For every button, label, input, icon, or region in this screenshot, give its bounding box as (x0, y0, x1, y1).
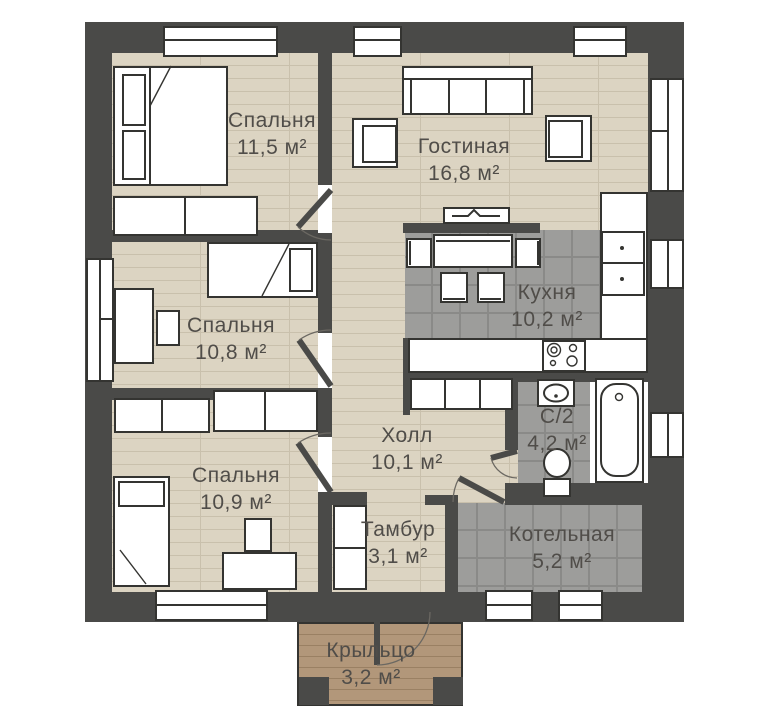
window-right-bathroom (650, 412, 684, 458)
room-label-vestibule: Тамбур 3,1 м² (361, 516, 435, 570)
room-name: Котельная (509, 521, 615, 548)
chair (515, 238, 541, 268)
tv-stand-bar (403, 223, 540, 233)
window-top-living-right (573, 26, 627, 57)
window-top-bedroom1 (163, 26, 278, 57)
room-label-bedroom-3: Спальня 10,9 м² (192, 462, 280, 516)
window-bottom-boiler-right (558, 590, 603, 621)
room-area: 10,9 м² (192, 489, 280, 516)
room-area: 3,2 м² (326, 664, 415, 691)
room-label-bedroom-1: Спальня 11,5 м² (228, 107, 316, 161)
armchair (545, 115, 592, 162)
wall-center-2 (318, 233, 332, 333)
room-area: 10,2 м² (511, 306, 583, 333)
chair (440, 272, 468, 303)
room-name: Спальня (187, 312, 275, 339)
room-label-living-room: Гостиная 16,8 м² (418, 133, 510, 187)
toilet-tank (543, 478, 571, 497)
room-label-bathroom: С/2 4,2 м² (527, 403, 586, 457)
window-bottom-bedroom3 (155, 590, 268, 621)
pillow (122, 74, 146, 126)
tv-icon (443, 207, 510, 224)
wall-bathroom-bottom (505, 483, 648, 505)
room-name: Спальня (192, 462, 280, 489)
room-label-boiler-room: Котельная 5,2 м² (509, 521, 615, 575)
wardrobe (213, 390, 318, 432)
chair (156, 310, 180, 346)
wall-vestibule-right (445, 495, 458, 592)
sofa (402, 66, 533, 115)
hall-closet (410, 378, 513, 410)
wall-vestibule-stub-left (332, 492, 367, 505)
armchair (352, 118, 398, 168)
room-name: Кухня (511, 279, 583, 306)
room-area: 10,1 м² (371, 449, 443, 476)
wardrobe (114, 398, 210, 433)
room-name: Холл (371, 422, 443, 449)
room-name: Спальня (228, 107, 316, 134)
pillow (122, 130, 146, 180)
window-top-living-left (353, 26, 402, 57)
kitchen-counter-bottom (408, 338, 648, 373)
wall-center-3 (318, 388, 332, 437)
window-right-kitchen (650, 239, 684, 289)
room-label-kitchen: Кухня 10,2 м² (511, 279, 583, 333)
room-label-bedroom-2: Спальня 10,8 м² (187, 312, 275, 366)
room-area: 5,2 м² (509, 548, 615, 575)
room-label-hall: Холл 10,1 м² (371, 422, 443, 476)
room-area: 11,5 м² (228, 134, 316, 161)
floor-plan: Спальня 11,5 м² Гостиная 16,8 м² Кухня 1… (0, 0, 766, 721)
chair (406, 238, 432, 268)
stove-icon (542, 340, 586, 372)
room-label-porch: Крыльцо 3,2 м² (326, 637, 415, 691)
dresser (113, 196, 258, 236)
window-right-living (650, 78, 684, 192)
wall-center-1 (318, 53, 332, 185)
chair (477, 272, 505, 303)
window-bottom-boiler-left (485, 590, 533, 621)
wall-boiler-right (642, 497, 648, 592)
room-name: Крыльцо (326, 637, 415, 664)
fridge-icon (601, 231, 645, 296)
window-left-bedroom2 (86, 258, 114, 382)
desk (114, 288, 154, 364)
desk (222, 552, 297, 590)
wall-vestibule-stub-right (425, 495, 458, 505)
porch-post-right (433, 677, 463, 705)
room-area: 16,8 м² (418, 160, 510, 187)
room-name: Тамбур (361, 516, 435, 543)
bathtub-icon (595, 378, 644, 483)
room-name: Гостиная (418, 133, 510, 160)
pillow (289, 248, 313, 292)
room-name: С/2 (527, 403, 586, 430)
porch-post-left (299, 677, 329, 705)
room-area: 3,1 м² (361, 543, 435, 570)
dining-table (433, 234, 513, 268)
room-area: 10,8 м² (187, 339, 275, 366)
room-area: 4,2 м² (527, 430, 586, 457)
pillow (118, 481, 165, 507)
wall-center-4 (318, 492, 332, 592)
chair (244, 518, 272, 552)
